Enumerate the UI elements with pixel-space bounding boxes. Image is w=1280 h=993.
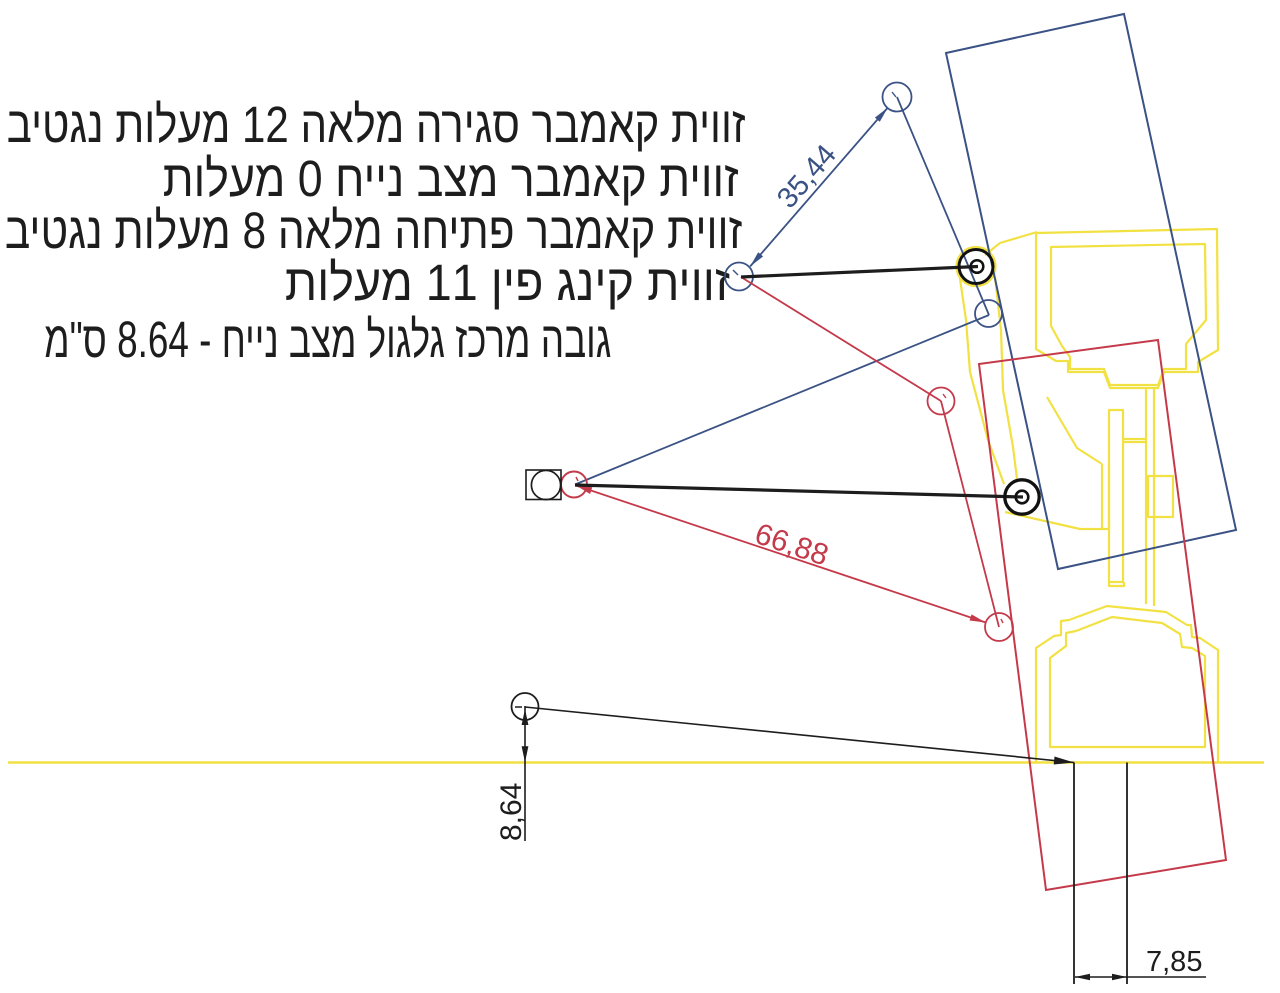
svg-text:35,44: 35,44 [771,139,843,215]
svg-text:66,88: 66,88 [751,517,833,572]
svg-text:8,64: 8,64 [495,783,528,841]
svg-text:7,85: 7,85 [1146,946,1202,978]
